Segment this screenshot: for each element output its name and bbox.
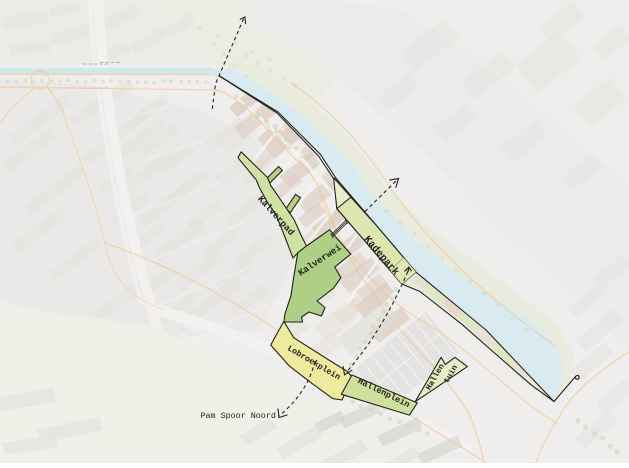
svg-text:Pam Spoor Noord: Pam Spoor Noord: [201, 411, 276, 421]
